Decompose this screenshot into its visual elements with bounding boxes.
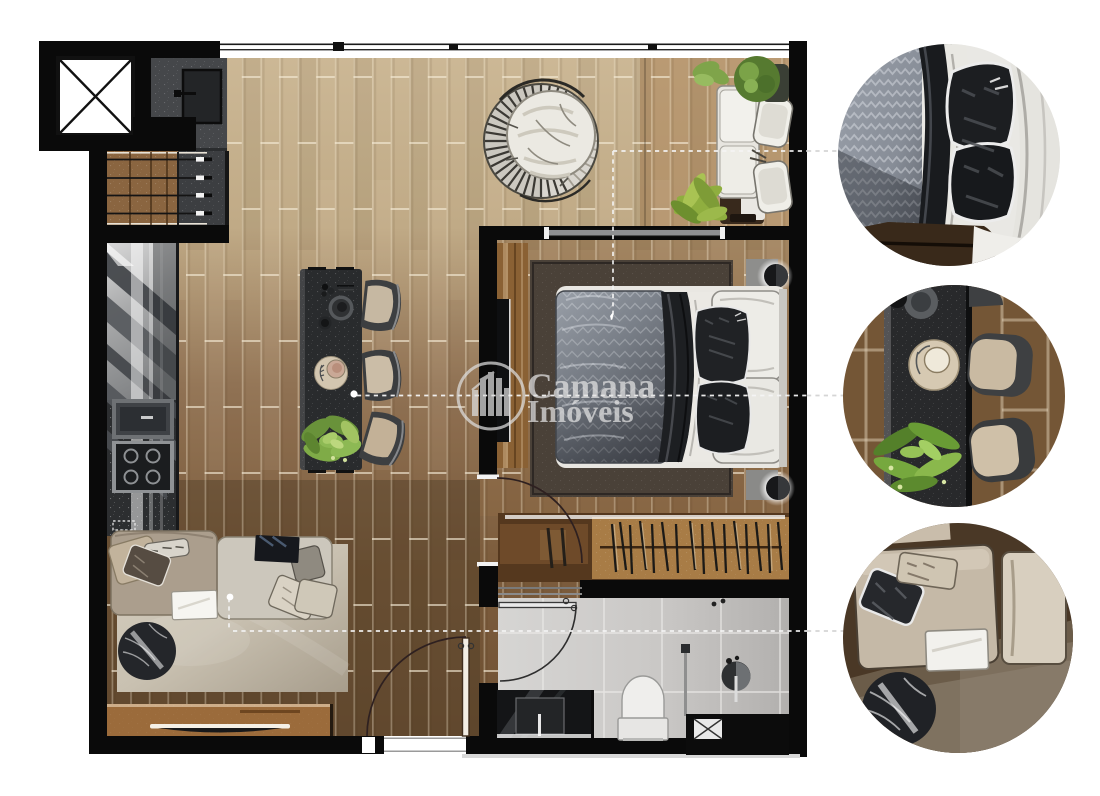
svg-text:Imóveis: Imóveis	[527, 393, 634, 429]
